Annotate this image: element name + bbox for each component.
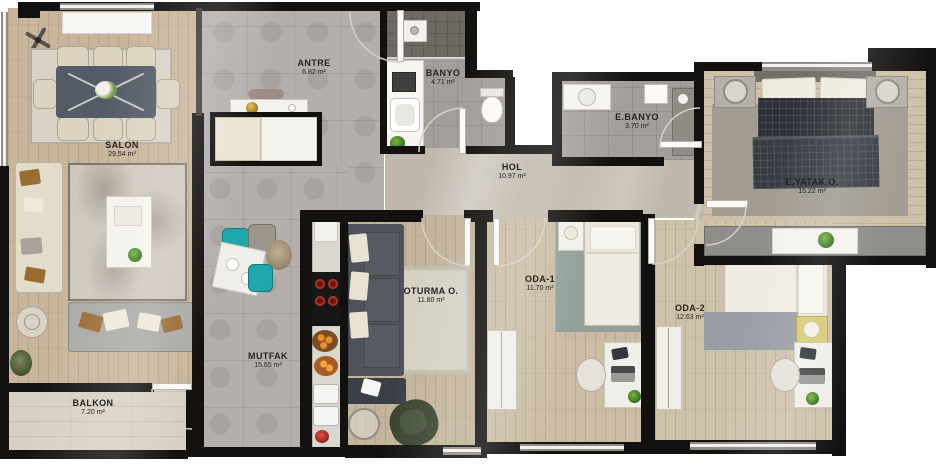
master-door-leaf	[706, 200, 748, 208]
room-label-mutfak: MUTFAK 15.65 m²	[248, 351, 288, 370]
room-name: MUTFAK	[248, 351, 288, 361]
table-plant	[128, 248, 142, 262]
wall-hol-south-a	[300, 210, 423, 222]
toilet-bowl	[481, 96, 503, 123]
sofa-pillow	[349, 233, 370, 263]
wall-master-left-upper	[694, 62, 704, 204]
wall-banyo-bottom-a	[380, 146, 425, 154]
glass-side-table	[348, 408, 380, 440]
oda1-wardrobe-handle	[501, 332, 502, 408]
oda2-duvet	[726, 262, 798, 316]
ensuite-fixture	[644, 84, 668, 104]
ebanyo-door-leaf	[660, 141, 702, 148]
room-label-ebanyo: E.BANYO 3.70 m²	[615, 112, 659, 131]
oda1-wardrobe	[487, 330, 517, 410]
oda2-wardrobe	[656, 326, 682, 410]
room-area: 12.63 m²	[675, 313, 705, 322]
window-oda2	[690, 442, 816, 450]
sofa-cushion	[364, 324, 400, 368]
dining-chair	[57, 117, 89, 141]
counter-appliance	[314, 220, 338, 242]
nightstand-lamp	[723, 79, 748, 104]
sofa-pillow	[20, 237, 42, 255]
wall-salon-balcony	[8, 383, 154, 392]
bath-sink-basin	[395, 104, 415, 126]
wall-ebanyo-left	[552, 78, 562, 166]
banyo-door-leaf	[459, 108, 466, 154]
room-area: 10.97 m²	[498, 172, 526, 181]
oturma-door-leaf	[464, 218, 471, 266]
room-label-balkon: BALKON 7.20 m²	[73, 398, 114, 417]
wall-counter-back	[300, 218, 312, 455]
room-name: ANTRE	[298, 58, 331, 68]
table-plate	[226, 258, 239, 271]
oda2-nightstand-plate	[803, 321, 820, 338]
room-name: BALKON	[73, 398, 114, 408]
oda2-rug	[704, 312, 798, 350]
room-area: 6.82 m²	[298, 68, 331, 77]
wall-balcony-bottom	[8, 450, 188, 459]
oda1-laptop	[611, 366, 635, 382]
wall-banyo-right-upper	[465, 2, 477, 78]
wall-antre-banyo	[380, 8, 387, 154]
sofa-cushion	[364, 278, 400, 322]
table-flowers	[95, 81, 117, 99]
room-label-hol: HOL 10.97 m²	[498, 162, 526, 181]
room-area: 11.80 m²	[404, 296, 459, 305]
wall-banyo-right-lower	[505, 77, 515, 154]
sofa-cushion	[364, 232, 400, 276]
oda1-pillow	[590, 226, 636, 250]
coffee-table-tray	[114, 206, 142, 226]
oturma-rug	[395, 266, 471, 374]
vanity-mirror	[392, 72, 416, 92]
entry-cabinet-cream	[215, 117, 261, 161]
sofa-pillow	[19, 169, 41, 187]
room-name: HOL	[498, 162, 526, 172]
dining-chair	[126, 117, 156, 141]
wall-top-corner	[18, 2, 40, 18]
window-oda1	[520, 444, 624, 451]
window-salon-left	[1, 12, 8, 166]
shower-head-icon	[410, 26, 419, 35]
dining-chair	[33, 79, 57, 109]
stove-burner	[328, 296, 338, 306]
dining-chair	[93, 117, 123, 141]
room-name: ODA-2	[675, 303, 705, 313]
wall-ebanyo-bottom	[552, 157, 664, 166]
window-salon-top	[60, 3, 154, 10]
red-pot	[315, 430, 329, 443]
oda2-pillow	[798, 264, 824, 314]
room-label-banyo: BANYO 4.71 m²	[426, 68, 461, 87]
kitchen-sink	[313, 384, 339, 404]
sofa-pillow	[349, 311, 369, 338]
wall-oturma-oda1	[475, 214, 487, 454]
side-table-inner	[24, 314, 40, 330]
entry-cabinet-white	[261, 117, 317, 161]
wall-salon-kitchen	[192, 113, 204, 387]
oda1-plant	[628, 390, 641, 403]
stove-burner	[315, 279, 325, 289]
decor-cup	[288, 104, 296, 112]
room-label-oda2: ODA-2 12.63 m²	[675, 303, 705, 322]
kitchen-sink	[313, 406, 339, 426]
room-name: ODA-1	[525, 274, 555, 284]
wall-master-right	[926, 62, 936, 268]
nightstand-lamp	[875, 79, 900, 104]
room-area: 4.71 m²	[426, 78, 461, 87]
wall-ebanyo-top	[552, 72, 702, 81]
entry-door-leaf	[397, 10, 404, 62]
room-label-eyatak: E.YATAK O. 15.22 m²	[785, 177, 838, 196]
room-area: 15.22 m²	[785, 187, 838, 196]
oda2-laptop	[799, 368, 825, 384]
oda2-desk-chair	[770, 358, 800, 392]
room-area: 29.54 m²	[105, 150, 139, 159]
room-label-antre: ANTRE 6.82 m²	[298, 58, 331, 77]
room-area: 7.20 m²	[73, 408, 114, 417]
oda2-wardrobe-handle	[668, 328, 669, 408]
oda2-notebook	[799, 347, 816, 360]
room-name: E.YATAK O.	[785, 177, 838, 187]
balcony-door-leaf	[152, 383, 192, 390]
wall-counter-front	[340, 218, 348, 452]
oda1-desk-chair	[576, 358, 606, 392]
oda2-door-leaf	[648, 218, 655, 264]
kitchen-chair-teal	[248, 264, 273, 292]
wall-banyo-bottom-b	[463, 146, 515, 154]
room-name: OTURMA O.	[404, 286, 459, 296]
wall-balcony-right	[186, 383, 204, 457]
oda2-plant	[806, 392, 819, 405]
wall-oda2-right	[832, 260, 846, 456]
room-name: SALON	[105, 140, 139, 150]
ensuite-drain	[678, 94, 688, 104]
room-area: 3.70 m²	[615, 122, 659, 131]
oda1-nightstand-decor	[564, 226, 578, 240]
wall-salon-antre-thin	[196, 8, 202, 116]
room-label-oda1: ODA-1 11.70 m²	[525, 274, 555, 293]
stove-burner	[315, 296, 325, 306]
wall-master-bottom	[694, 256, 936, 265]
window-oturma	[443, 447, 481, 455]
window-master	[762, 62, 872, 71]
oda1-duvet	[586, 252, 638, 324]
wall-left	[0, 166, 9, 459]
ensuite-sink	[578, 88, 596, 106]
wall-kitchen-bottom	[186, 447, 348, 457]
room-area: 15.65 m²	[248, 361, 288, 370]
fruit-plate	[314, 356, 338, 376]
room-area: 11.70 m²	[525, 284, 555, 293]
room-label-oturma: OTURMA O. 11.80 m²	[404, 286, 459, 305]
dining-chair	[156, 79, 180, 109]
wall-hol-south-c	[548, 210, 643, 222]
floor-plan: SALON 29.54 m² ANTRE 6.82 m² BANYO 4.71 …	[0, 0, 940, 468]
entry-pouf	[248, 89, 284, 99]
window-sill-box	[62, 12, 152, 34]
dresser-tray	[772, 228, 858, 254]
balcony-floor	[8, 385, 188, 452]
dresser-plant	[818, 232, 834, 248]
corner-plant	[10, 350, 32, 376]
room-name: BANYO	[426, 68, 461, 78]
sofa-pillow	[23, 197, 43, 213]
room-name: E.BANYO	[615, 112, 659, 122]
fruit-bowl	[312, 330, 338, 352]
room-label-salon: SALON 29.54 m²	[105, 140, 139, 159]
oda1-door-leaf	[493, 218, 500, 266]
stove-burner	[328, 279, 338, 289]
sofa-pillow	[349, 271, 369, 300]
